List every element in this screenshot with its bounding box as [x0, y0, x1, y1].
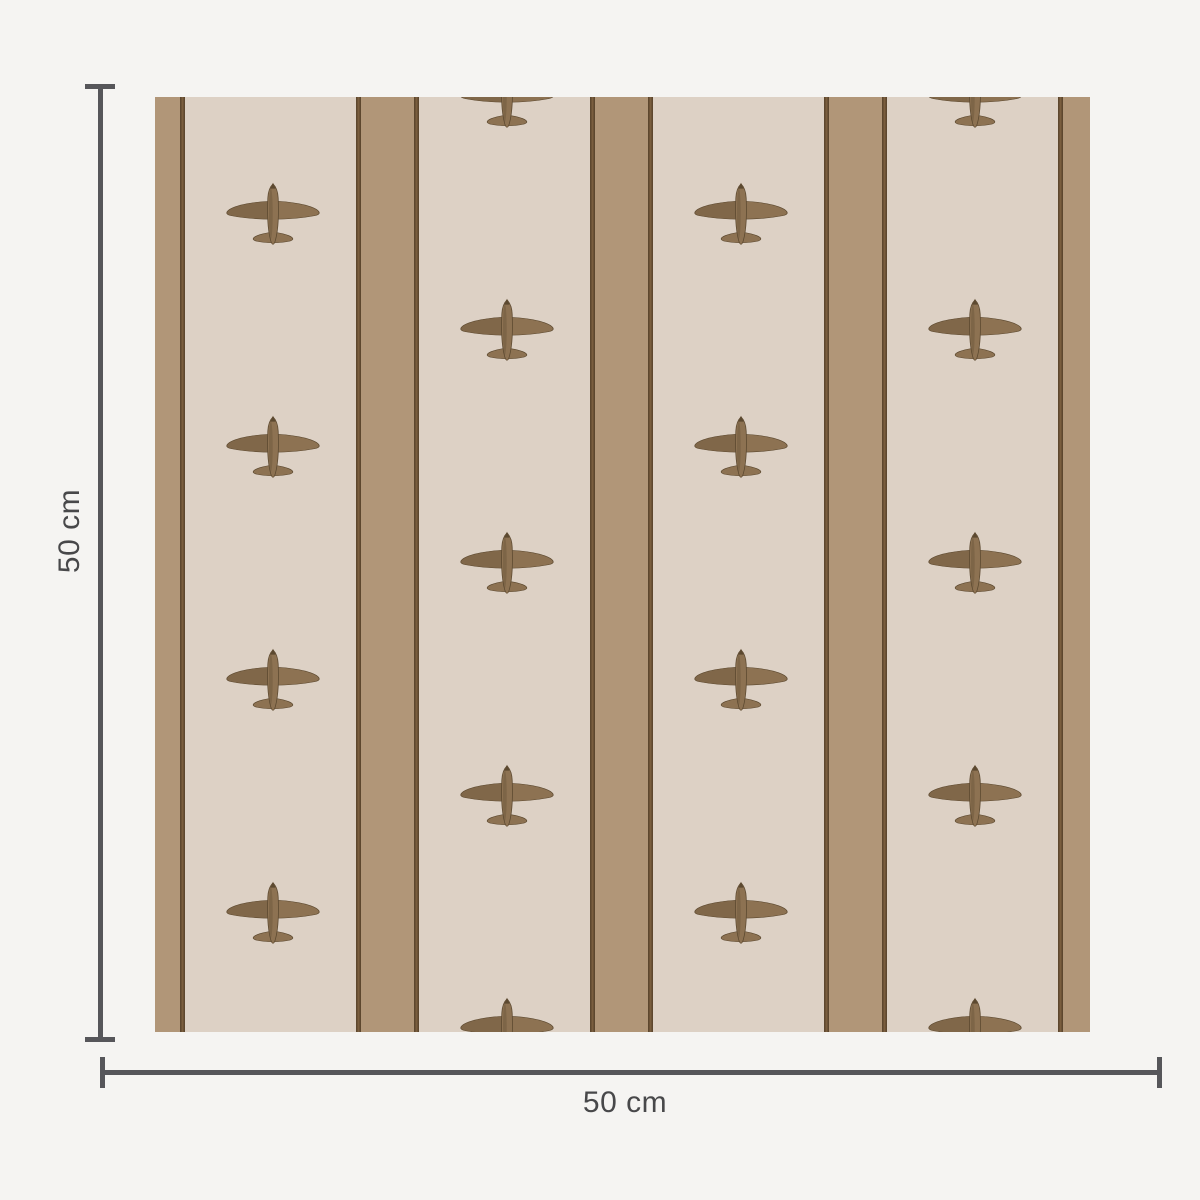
airplane-motif [926, 764, 1024, 834]
width-dimension-label: 50 cm [583, 1086, 667, 1120]
airplane-motif [926, 97, 1024, 135]
airplane-motif [224, 648, 322, 718]
height-dimension-cap-bottom [85, 1037, 115, 1042]
airplane-motif [692, 881, 790, 951]
wallpaper-swatch [155, 97, 1090, 1032]
height-dimension-line [98, 84, 103, 1042]
height-dimension-cap-top [85, 84, 115, 89]
product-dimension-image: 50 cm 50 cm [0, 0, 1200, 1200]
airplane-motif [692, 415, 790, 485]
airplane-motif [926, 997, 1024, 1032]
airplane-motif [458, 997, 556, 1032]
airplane-motif [224, 881, 322, 951]
airplane-motif [224, 415, 322, 485]
width-dimension-line [100, 1070, 1162, 1075]
airplane-motif [458, 764, 556, 834]
width-dimension-cap-left [100, 1057, 105, 1088]
airplane-motif [692, 182, 790, 252]
airplane-motif [458, 531, 556, 601]
airplane-motif [458, 97, 556, 135]
airplane-pattern-layer [155, 97, 1090, 1032]
height-dimension-label: 50 cm [53, 489, 87, 573]
airplane-motif [224, 182, 322, 252]
airplane-motif [926, 531, 1024, 601]
airplane-motif [458, 298, 556, 368]
airplane-motif [692, 648, 790, 718]
width-dimension-cap-right [1157, 1057, 1162, 1088]
airplane-motif [926, 298, 1024, 368]
